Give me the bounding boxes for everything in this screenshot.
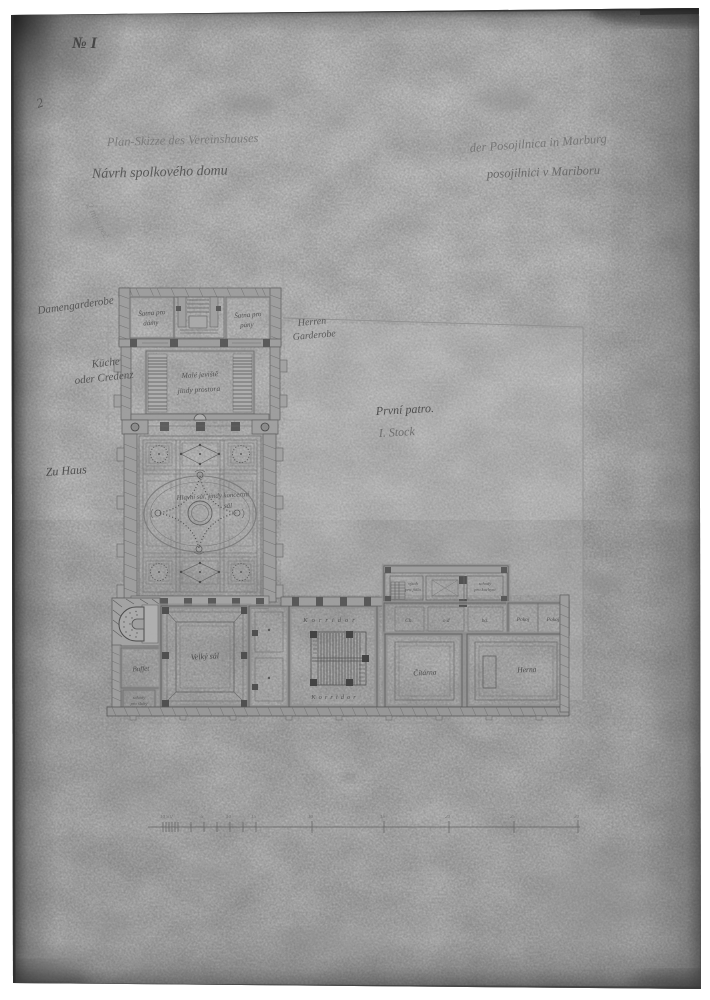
svg-text:Čítárna: Čítárna xyxy=(413,666,437,677)
svg-text:dámy: dámy xyxy=(143,318,160,327)
svg-text:ba.: ba. xyxy=(482,618,489,624)
svg-text:10: 10 xyxy=(308,815,314,820)
svg-text:30: 30 xyxy=(574,815,580,820)
svg-text:Pokoj: Pokoj xyxy=(516,617,530,623)
svg-text:o d: o d xyxy=(443,618,450,624)
svg-text:Pokoj: Pokoj xyxy=(546,617,560,623)
svg-text:pro jídla: pro jídla xyxy=(404,587,421,592)
svg-text:schody: schody xyxy=(133,695,146,700)
svg-text:Ch.: Ch. xyxy=(405,618,413,624)
svg-text:schody: schody xyxy=(479,581,492,586)
svg-text:Velký sál: Velký sál xyxy=(191,651,220,662)
svg-text:pro kuchyni: pro kuchyni xyxy=(473,587,496,592)
svg-text:15: 15 xyxy=(251,815,257,820)
svg-text:pány: pány xyxy=(239,320,255,329)
svg-text:Korridor: Korridor xyxy=(310,694,358,701)
svg-text:Buffet: Buffet xyxy=(132,665,150,674)
svg-text:10: 10 xyxy=(226,815,232,820)
svg-text:25: 25 xyxy=(510,815,516,820)
svg-text:výtah: výtah xyxy=(408,581,418,586)
svg-text:15: 15 xyxy=(380,815,386,820)
svg-text:Zu Haus: Zu Haus xyxy=(45,462,87,479)
svg-text:I. Stock: I. Stock xyxy=(377,424,415,440)
svg-text:sál: sál xyxy=(224,503,232,510)
svg-text:10 5 0: 10 5 0 xyxy=(160,815,173,820)
svg-text:№ I: № I xyxy=(71,35,98,52)
svg-text:20: 20 xyxy=(445,815,451,820)
svg-text:Korridor: Korridor xyxy=(302,617,358,624)
svg-text:Herna: Herna xyxy=(516,664,537,674)
svg-text:pro sluhy: pro sluhy xyxy=(130,701,148,706)
